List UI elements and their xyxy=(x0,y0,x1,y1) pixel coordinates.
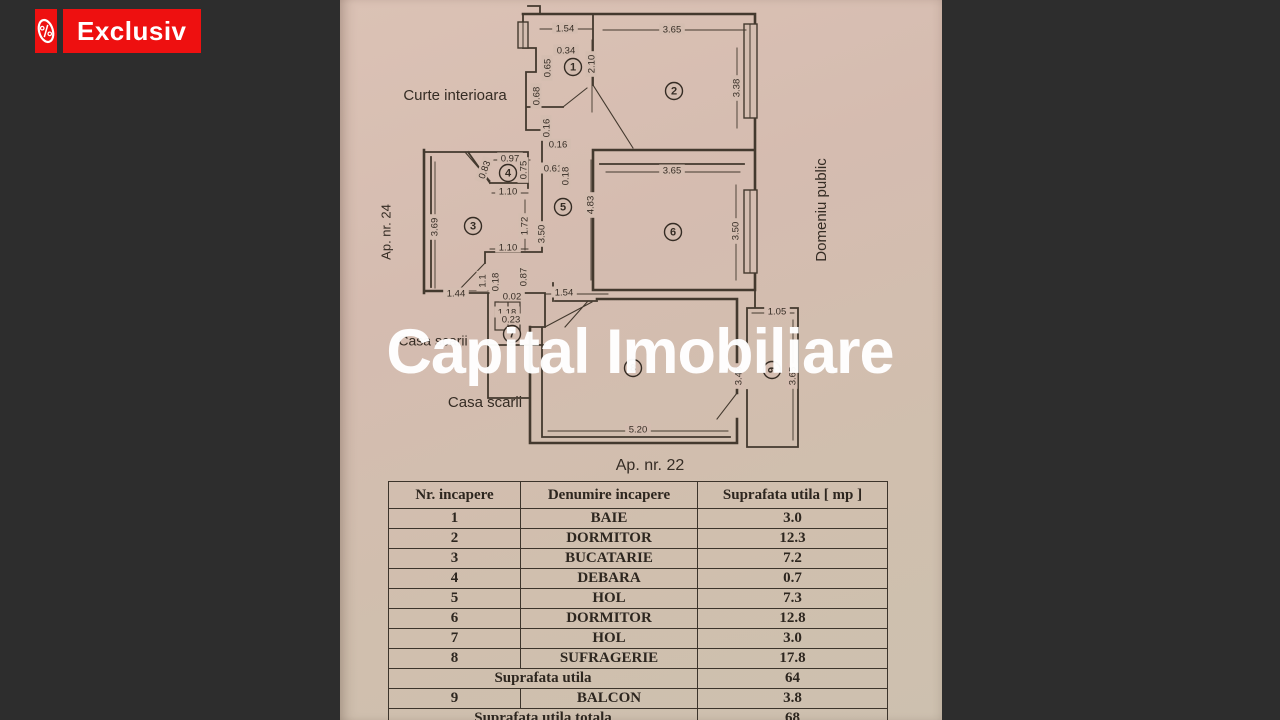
table-cell: 9 xyxy=(389,689,521,709)
table-cell: BUCATARIE xyxy=(521,549,698,569)
room-areas-table: Nr. incapere Denumire incapere Suprafata… xyxy=(388,481,888,720)
table-row: 3BUCATARIE7.2 xyxy=(389,549,888,569)
table-cell: DORMITOR xyxy=(521,609,698,629)
table-cell: 6 xyxy=(389,609,521,629)
svg-text:1.10: 1.10 xyxy=(499,187,518,198)
dimension-label: 3.65 xyxy=(659,165,685,177)
table-cell: SUFRAGERIE xyxy=(521,649,698,669)
dimension-label: 3.65 xyxy=(659,24,685,36)
room-number-5: 5 xyxy=(555,199,572,216)
svg-text:3.50: 3.50 xyxy=(731,222,742,241)
dimension-label: 1.10 xyxy=(495,186,521,198)
table-cell: 3.8 xyxy=(698,689,888,709)
dimension-label: 1.72 xyxy=(519,213,531,239)
table-cell: 3.0 xyxy=(698,629,888,649)
table-cell: 8 xyxy=(389,649,521,669)
svg-text:1.54: 1.54 xyxy=(556,24,575,35)
table-cell: 64 xyxy=(698,669,888,689)
table-row: 1BAIE3.0 xyxy=(389,509,888,529)
col-header-nr: Nr. incapere xyxy=(389,482,521,509)
table-row: 8SUFRAGERIE17.8 xyxy=(389,649,888,669)
table-cell: 3.0 xyxy=(698,509,888,529)
svg-text:1.44: 1.44 xyxy=(447,289,466,300)
dimension-label: 0.02 xyxy=(499,291,525,303)
room-number-2: 2 xyxy=(666,83,683,100)
plan-labels: 1.543.650.340.652.100.683.380.160.160.97… xyxy=(378,23,830,475)
svg-text:0.61: 0.61 xyxy=(544,164,563,175)
table-cell: 4 xyxy=(389,569,521,589)
table-cell: HOL xyxy=(521,589,698,609)
area-label: Ap. nr. 24 xyxy=(378,204,393,260)
svg-text:0.02: 0.02 xyxy=(503,292,522,303)
col-header-suprafata: Suprafata utila [ mp ] xyxy=(698,482,888,509)
percent-tag-icon xyxy=(35,9,57,53)
dimension-label: 0.83 xyxy=(475,156,495,184)
table-cell: 3 xyxy=(389,549,521,569)
dimension-label: 0.65 xyxy=(542,55,554,81)
dimension-label: 3.69 xyxy=(429,214,441,240)
area-label: Ap. nr. 22 xyxy=(616,457,685,474)
dimension-label: 1.44 xyxy=(443,288,469,300)
floor-plan-drawing: 1.543.650.340.652.100.683.380.160.160.97… xyxy=(340,0,942,478)
area-label: Casa scarii xyxy=(448,394,522,411)
table-cell: 0.7 xyxy=(698,569,888,589)
dimension-label: 4.83 xyxy=(585,192,597,218)
dimension-label: 0.34 xyxy=(553,45,579,57)
table-row: 7HOL3.0 xyxy=(389,629,888,649)
svg-text:2: 2 xyxy=(671,85,677,97)
table-cell: 12.3 xyxy=(698,529,888,549)
table-header-row: Nr. incapere Denumire incapere Suprafata… xyxy=(389,482,888,509)
svg-text:3.65: 3.65 xyxy=(663,166,682,177)
svg-text:1.1: 1.1 xyxy=(478,274,489,287)
svg-text:4: 4 xyxy=(505,167,512,179)
dimension-label: 1.1 xyxy=(477,271,489,291)
dimension-label: 0.16 xyxy=(541,115,553,141)
table-cell: 1 xyxy=(389,509,521,529)
balcony-row: 9BALCON3.8 xyxy=(389,689,888,709)
dimension-label: 3.50 xyxy=(536,221,548,247)
svg-text:0.18: 0.18 xyxy=(491,273,502,292)
dimension-label: 3.38 xyxy=(731,75,743,101)
table-cell: Suprafata utila totala xyxy=(389,709,698,720)
room-number-1: 1 xyxy=(565,59,582,76)
table-cell: 2 xyxy=(389,529,521,549)
svg-text:0.75: 0.75 xyxy=(519,161,530,180)
svg-text:0.16: 0.16 xyxy=(542,119,553,138)
exclusiv-badge-label: Exclusiv xyxy=(77,16,187,47)
svg-text:4.83: 4.83 xyxy=(586,196,597,215)
col-header-denumire: Denumire incapere xyxy=(521,482,698,509)
exclusiv-badge-label-box: Exclusiv xyxy=(63,9,201,53)
table-row: 4DEBARA0.7 xyxy=(389,569,888,589)
svg-text:2.10: 2.10 xyxy=(587,55,598,74)
svg-text:3.65: 3.65 xyxy=(663,25,682,36)
table-cell: 7.3 xyxy=(698,589,888,609)
svg-text:0.18: 0.18 xyxy=(561,167,572,186)
svg-text:1.54: 1.54 xyxy=(555,288,574,299)
room-number-6: 6 xyxy=(665,224,682,241)
table-cell: 7.2 xyxy=(698,549,888,569)
area-label: Domeniu public xyxy=(813,158,830,262)
table-cell: 17.8 xyxy=(698,649,888,669)
table-row: 2DORMITOR12.3 xyxy=(389,529,888,549)
svg-text:3: 3 xyxy=(470,220,476,232)
dimension-label: 5.20 xyxy=(625,424,651,436)
svg-text:0.34: 0.34 xyxy=(557,46,576,57)
table-row: 6DORMITOR12.8 xyxy=(389,609,888,629)
table-cell: BALCON xyxy=(521,689,698,709)
dimension-label: 1.54 xyxy=(551,287,577,299)
dimension-label: 0.75 xyxy=(518,157,530,183)
table-cell: DORMITOR xyxy=(521,529,698,549)
svg-text:3.69: 3.69 xyxy=(430,218,441,237)
table-cell: 5 xyxy=(389,589,521,609)
room-number-4: 4 xyxy=(500,165,517,182)
table-cell: DEBARA xyxy=(521,569,698,589)
table-cell: HOL xyxy=(521,629,698,649)
table-cell: 68 xyxy=(698,709,888,720)
table-cell: Suprafata utila xyxy=(389,669,698,689)
dimension-label: 3.50 xyxy=(730,218,742,244)
table-cell: BAIE xyxy=(521,509,698,529)
subtotal-row: Suprafata utila64 xyxy=(389,669,888,689)
dimension-label: 2.10 xyxy=(586,51,598,77)
svg-text:5: 5 xyxy=(560,201,566,213)
area-label: Curte interioara xyxy=(403,87,507,104)
capital-imobiliare-watermark: Capital Imobiliare xyxy=(386,316,893,388)
svg-text:6: 6 xyxy=(670,226,676,238)
dimension-label: 1.10 xyxy=(495,242,521,254)
svg-text:0.87: 0.87 xyxy=(519,268,530,287)
dimension-label: 0.16 xyxy=(545,139,571,151)
dimension-label: 1.54 xyxy=(552,23,578,35)
page: Exclusiv xyxy=(0,0,1280,720)
svg-text:0.16: 0.16 xyxy=(549,140,568,151)
dimension-label: 0.18 xyxy=(560,163,572,189)
svg-text:1.72: 1.72 xyxy=(520,217,531,236)
svg-text:1.10: 1.10 xyxy=(499,243,518,254)
svg-text:0.68: 0.68 xyxy=(532,87,543,106)
svg-text:3.38: 3.38 xyxy=(732,79,743,98)
table-row: 5HOL7.3 xyxy=(389,589,888,609)
svg-text:0.65: 0.65 xyxy=(543,59,554,78)
svg-text:1: 1 xyxy=(570,61,576,73)
table-cell: 12.8 xyxy=(698,609,888,629)
svg-text:0.83: 0.83 xyxy=(477,159,494,180)
svg-text:0.97: 0.97 xyxy=(501,154,520,165)
exclusiv-badge[interactable]: Exclusiv xyxy=(35,9,201,53)
room-number-3: 3 xyxy=(465,218,482,235)
dimension-label: 0.68 xyxy=(531,83,543,109)
dimension-label: 0.87 xyxy=(518,264,530,290)
svg-text:5.20: 5.20 xyxy=(629,425,648,436)
table-cell: 7 xyxy=(389,629,521,649)
svg-text:3.50: 3.50 xyxy=(537,225,548,244)
total-row: Suprafata utila totala68 xyxy=(389,709,888,720)
